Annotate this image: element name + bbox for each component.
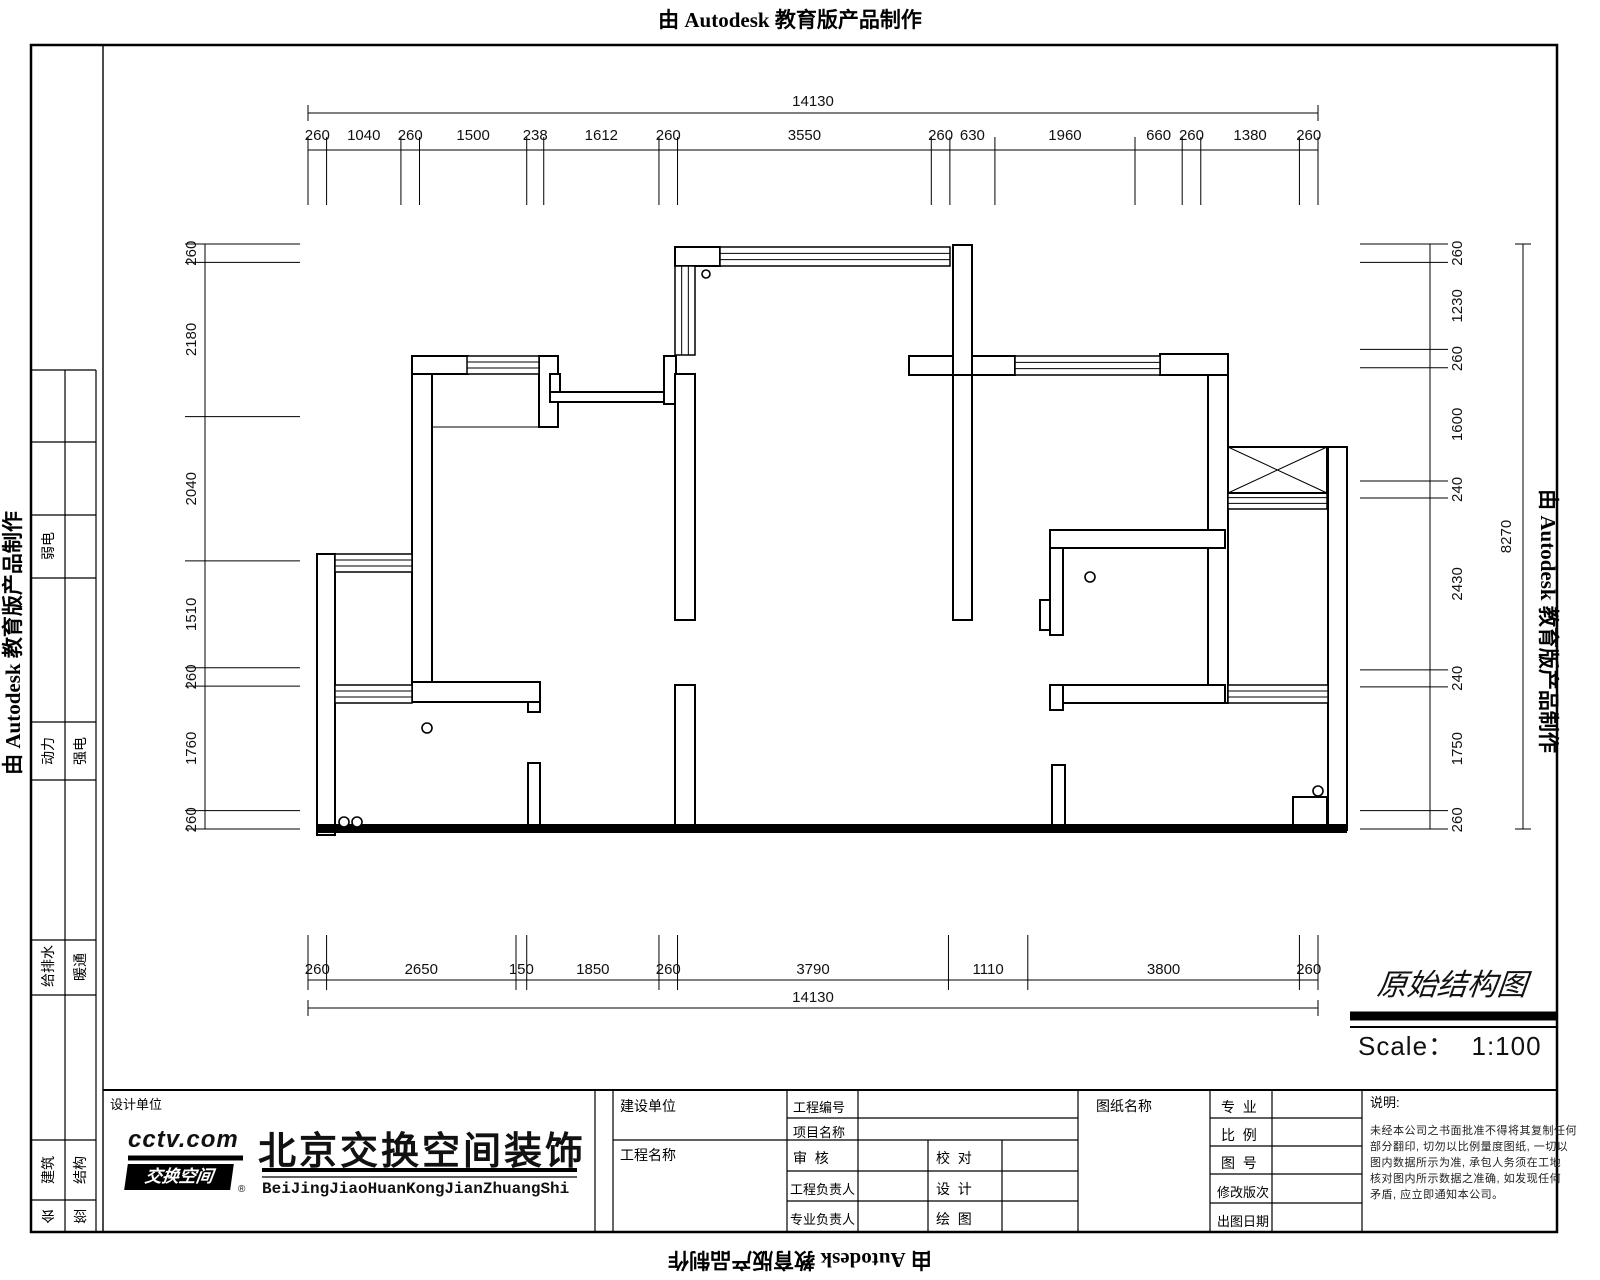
sidebar-label: 强电 [70, 731, 90, 771]
dim-label: 260 [305, 127, 330, 144]
design-unit-label: 设计单位 [110, 1094, 162, 1113]
dim-label: 2650 [405, 961, 438, 978]
dim-label: 260 [183, 807, 200, 832]
dim-label: 660 [1146, 127, 1171, 144]
window [335, 685, 412, 703]
dim-label: 1612 [585, 127, 618, 144]
sidebar-label: 建筑 [38, 1150, 58, 1190]
draft-label: 绘 图 [936, 1209, 972, 1229]
sidebar-label: 动力 [38, 731, 58, 771]
plot-stamp-top: 由 Autodesk 教育版产品制作 [600, 4, 980, 34]
window [1015, 356, 1160, 375]
dim-label: 1960 [1048, 127, 1081, 144]
dim-label: 3800 [1147, 961, 1180, 978]
dim-label: 238 [523, 127, 548, 144]
plot-stamp-bottom: 由 Autodesk 教育版产品制作 [610, 1246, 990, 1276]
sheet-no-label: 图 号 [1221, 1153, 1257, 1173]
wall [1050, 530, 1225, 548]
dim-total-label: 14130 [792, 93, 834, 110]
dim-label: 260 [183, 664, 200, 689]
wall [550, 392, 674, 402]
utility-symbol [352, 817, 362, 827]
dim-label: 260 [656, 127, 681, 144]
dim-label: 240 [1449, 477, 1466, 502]
dim-label: 260 [1449, 807, 1466, 832]
wall [675, 685, 695, 826]
jiaohuan-kongjian-logo: 交换空间 [124, 1164, 234, 1190]
check-label: 校 对 [936, 1148, 972, 1168]
project-lead-label: 工程负责人 [790, 1179, 855, 1198]
dim-total-label: 8270 [1498, 520, 1515, 553]
drawing-title: 原始结构图 [1348, 960, 1558, 1004]
dim-label: 240 [1449, 666, 1466, 691]
wall [953, 245, 972, 376]
dim-label: 260 [1449, 241, 1466, 266]
owner-label: 建设单位 [620, 1096, 676, 1116]
dim-label: 1230 [1449, 289, 1466, 322]
utility-symbol [339, 817, 349, 827]
window [720, 247, 950, 266]
wall [1293, 797, 1327, 828]
dim-label: 3790 [796, 961, 829, 978]
utility-symbol [422, 723, 432, 733]
project-name-label: 工程名称 [620, 1145, 676, 1165]
dim-label: 260 [398, 127, 423, 144]
plot-stamp-left: 由 Autodesk 教育版产品制作 [0, 453, 27, 833]
notes-line: 矛盾, 应立即通知本公司。 [1370, 1186, 1504, 1202]
utility-symbol [1085, 572, 1095, 582]
dim-label: 260 [305, 961, 330, 978]
dim-label: 1040 [347, 127, 380, 144]
dim-label: 1600 [1449, 408, 1466, 441]
dim-label: 260 [183, 241, 200, 266]
window [467, 356, 539, 374]
notes-label: 说明: [1370, 1092, 1400, 1111]
dim-label: 1500 [456, 127, 489, 144]
window [1228, 685, 1328, 703]
wall [1328, 447, 1347, 830]
dim-label: 2180 [183, 323, 200, 356]
dim-label: 260 [656, 961, 681, 978]
project-no-label: 工程编号 [793, 1097, 845, 1116]
wall [1050, 685, 1063, 710]
scale-row-label: 比 例 [1221, 1125, 1257, 1145]
dim-label: 1510 [183, 598, 200, 631]
wall [412, 682, 540, 702]
window [675, 266, 695, 355]
wall-solid [317, 824, 1347, 833]
sidebar-label: 结构 [70, 1150, 90, 1190]
wall [675, 247, 720, 266]
company-name-pinyin: BeiJingJiaoHuanKongJianZhuangShi [262, 1180, 569, 1198]
plot-stamp-right: 由 Autodesk 教育版产品制作 [1534, 431, 1564, 811]
revision-label: 修改版次 [1217, 1182, 1269, 1201]
window [335, 554, 412, 572]
discipline-lead-label: 专业负责人 [790, 1209, 855, 1228]
dim-total-label: 14130 [792, 989, 834, 1006]
drawing-scale: Scale： 1:100 [1358, 1026, 1542, 1063]
design-label: 设 计 [936, 1179, 972, 1199]
utility-symbol [1313, 786, 1323, 796]
sidebar-label: 暖通 [70, 947, 90, 987]
dim-label: 2430 [1449, 567, 1466, 600]
dim-label: 1850 [576, 961, 609, 978]
dim-label: 150 [509, 961, 534, 978]
drawing-canvas: 2601040260150023816122603550260630196066… [0, 0, 1600, 1280]
dim-label: 1760 [183, 732, 200, 765]
notes-line: 部分翻印, 切勿以比例量度图纸, 一切以 [1370, 1138, 1568, 1154]
wall [528, 702, 540, 712]
utility-symbol [702, 270, 710, 278]
discipline-label: 专 业 [1221, 1097, 1257, 1117]
wall [1040, 600, 1050, 630]
cad-sheet: 2601040260150023816122603550260630196066… [0, 0, 1600, 1280]
window [1228, 492, 1327, 509]
dim-label: 260 [1179, 127, 1204, 144]
sheet-name-label: 图纸名称 [1096, 1096, 1152, 1116]
dim-label: 260 [1296, 961, 1321, 978]
dim-label: 2040 [183, 472, 200, 505]
registered-mark: ® [238, 1184, 245, 1195]
issue-date-label: 出图日期 [1217, 1211, 1269, 1230]
sidebar-label: 给排水 [38, 947, 58, 987]
dim-label: 260 [1296, 127, 1321, 144]
wall [1052, 765, 1065, 826]
dim-label: 630 [960, 127, 985, 144]
item-name-label: 项目名称 [793, 1122, 845, 1141]
dim-label: 1380 [1233, 127, 1266, 144]
sidebar-label: 签 [60, 1206, 100, 1226]
dim-label: 3550 [788, 127, 821, 144]
notes-line: 核对图内所示数据之准确, 如发现任何 [1370, 1170, 1561, 1186]
wall [1050, 548, 1063, 635]
notes-line: 未经本公司之书面批准不得将其复制任何 [1370, 1122, 1577, 1138]
dim-label: 1750 [1449, 732, 1466, 765]
company-name-cn: 北京交换空间装饰 [258, 1120, 588, 1175]
cctv-logo: cctv.com [128, 1126, 239, 1154]
wall [412, 374, 432, 682]
sidebar-label: 弱电 [38, 526, 58, 566]
wall [1160, 354, 1228, 375]
wall [675, 374, 695, 620]
dim-label: 260 [1449, 346, 1466, 371]
wall [1063, 685, 1225, 703]
wall [528, 763, 540, 826]
wall [317, 554, 335, 835]
wall [412, 356, 468, 374]
dim-label: 1110 [973, 961, 1004, 978]
review-label: 审 核 [793, 1148, 829, 1168]
notes-line: 图内数据所示为准, 承包人务须在工地 [1370, 1154, 1561, 1170]
wall [953, 375, 972, 620]
dim-label: 260 [928, 127, 953, 144]
